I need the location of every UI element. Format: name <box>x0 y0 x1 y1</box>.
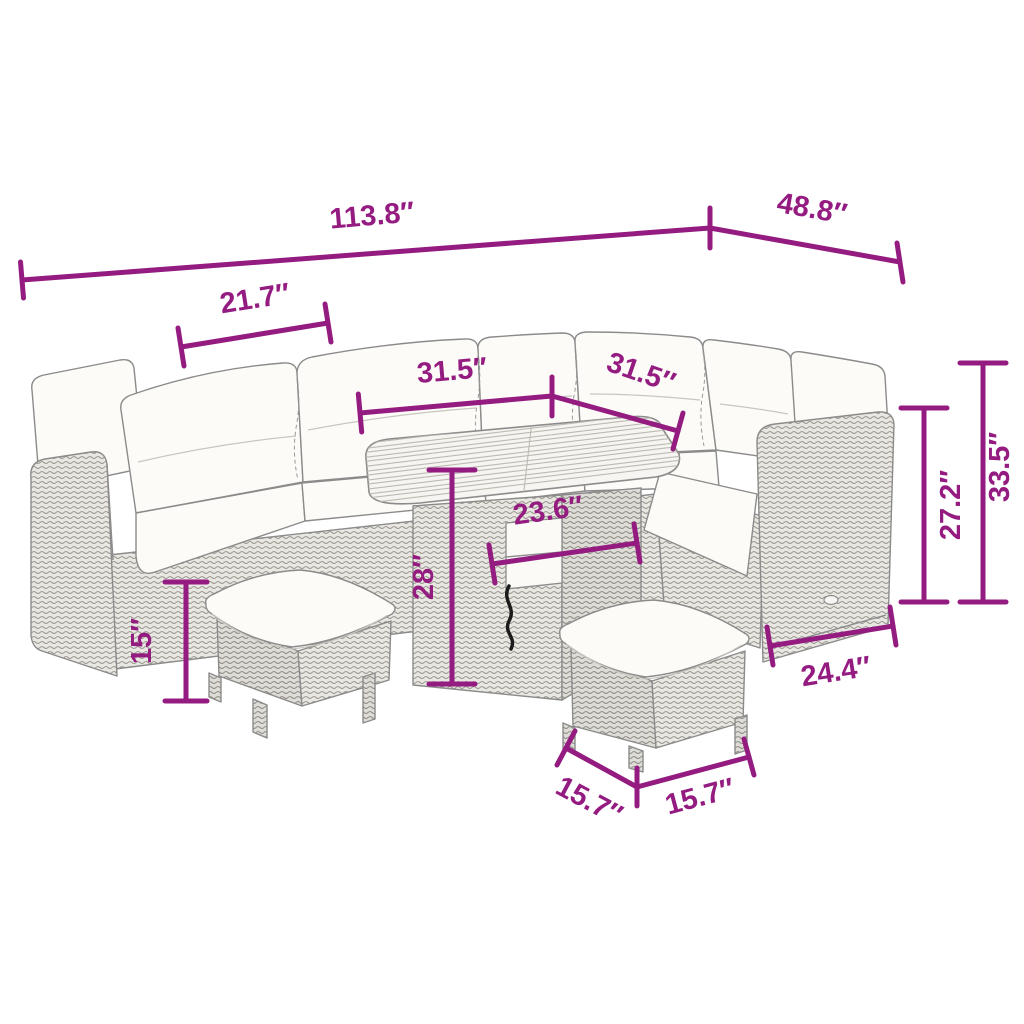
dimension-line <box>710 228 900 262</box>
product-dimension-diagram: 113.8″ 48.8″ 21.7″ 31.5″ 31.5″ <box>0 0 1024 1024</box>
dimension-tick <box>21 262 24 298</box>
dimension-tick <box>897 243 903 282</box>
stool-left <box>206 570 395 738</box>
stool-leg <box>209 673 221 702</box>
dimension-label-stool-width: 15.7″ <box>550 770 627 831</box>
dimension-label-stool-height: 15″ <box>126 618 158 664</box>
dim-overall-width: 113.8″ <box>21 196 711 298</box>
dimension-tick <box>890 607 896 645</box>
armrest-detail-hole <box>824 596 838 605</box>
dimension-tick <box>325 304 331 342</box>
dimension-label-overall-depth: 48.8″ <box>775 187 850 231</box>
stool-right <box>560 600 749 772</box>
right-armrest-panel <box>757 412 894 662</box>
dimension-label-backrest-height: 27.2″ <box>935 470 967 540</box>
dimension-tick <box>178 328 184 366</box>
dim-overall-depth: 48.8″ <box>710 187 903 282</box>
dim-overall-height: 33.5″ <box>960 363 1016 602</box>
dim-seat-width: 21.7″ <box>178 278 331 366</box>
dimension-label-seat-width: 21.7″ <box>218 278 293 321</box>
dimension-label-table-height: 28″ <box>408 554 440 600</box>
stool-leg <box>363 673 375 723</box>
left-armrest-panel <box>31 452 117 676</box>
dimension-label-overall-width: 113.8″ <box>328 196 415 235</box>
garden-lounge-set-illustration: 113.8″ 48.8″ 21.7″ 31.5″ 31.5″ <box>0 0 1024 1024</box>
dimension-line <box>22 228 710 280</box>
dimension-tick <box>358 394 361 432</box>
dimension-label-armrest-depth: 24.4″ <box>799 651 874 694</box>
dim-backrest-height: 27.2″ <box>901 408 967 602</box>
dimension-line <box>181 323 328 347</box>
dimension-label-overall-height: 33.5″ <box>984 432 1016 502</box>
dimension-label-table-length: 31.5″ <box>416 352 489 390</box>
stool-leg <box>253 699 267 738</box>
